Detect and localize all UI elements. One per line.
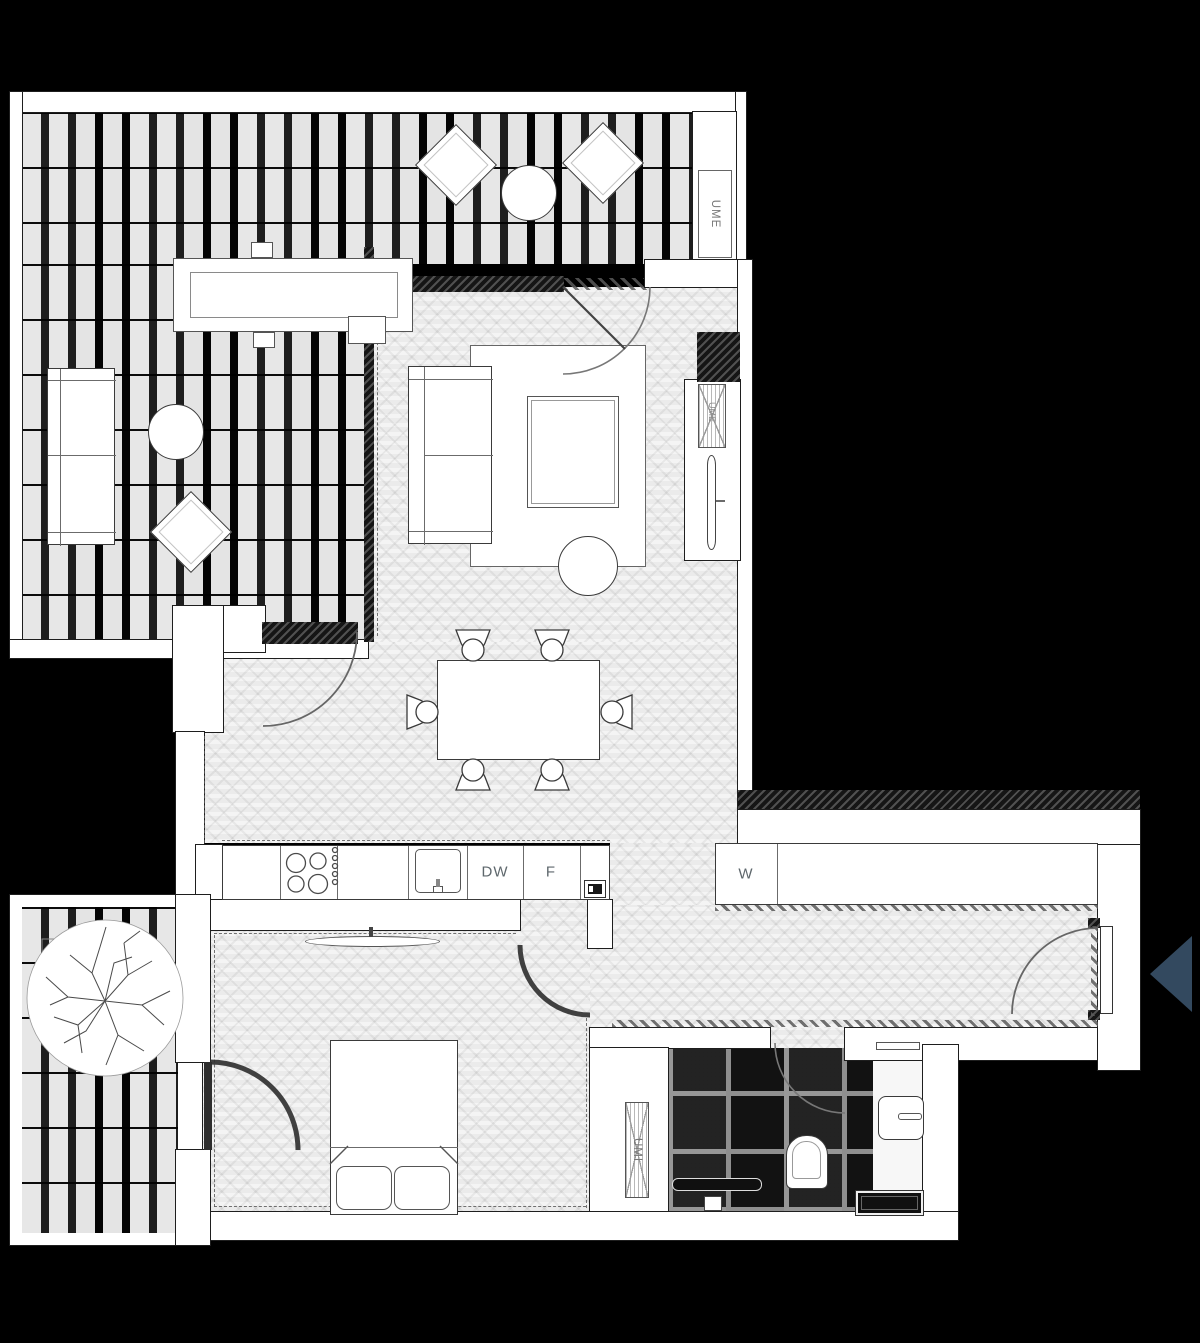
hallway-north-wall	[738, 810, 1140, 845]
bathroom-east-wall	[923, 1045, 958, 1215]
tv-mount	[716, 500, 725, 502]
terrace-dining-door-threshold	[262, 622, 358, 644]
washer-label: W	[738, 866, 753, 883]
bedroom-floor-edge-left	[214, 935, 215, 1207]
counter-divider-6	[580, 846, 581, 899]
bedroom-west-wall-lower	[176, 1150, 210, 1245]
bedroom-west-wall-upper	[176, 895, 210, 1062]
hallway-south-edge-hatch	[612, 1020, 1098, 1027]
terrace-wall-left	[10, 92, 22, 658]
tv	[707, 455, 716, 550]
counter-divider-5	[523, 846, 524, 899]
counter-divider-2	[337, 846, 338, 899]
dining-corner-wall-v	[173, 606, 223, 732]
hallway-north-edge-hatch	[715, 905, 1098, 911]
terrace-wall-right	[736, 92, 746, 264]
tv-niche-top-hatch	[697, 332, 740, 382]
kitchen-faucet-stub	[436, 879, 440, 887]
counter-divider-4	[467, 846, 468, 899]
washer-closet-divider	[777, 844, 778, 904]
floor-plan-canvas: UME UME UMI DW F W	[0, 0, 1200, 1343]
towel-rail	[876, 1042, 920, 1050]
terrace-bench-extension	[348, 316, 386, 344]
bathroom-faucet	[898, 1113, 922, 1120]
kitchen-counter-guide	[222, 840, 610, 841]
hallway-south-wall-west	[590, 1028, 770, 1048]
entry-threshold-hatch	[1091, 926, 1098, 1016]
bathroom-unit-label: UMI	[631, 1138, 643, 1162]
shower-drain-box	[704, 1196, 722, 1211]
dining-table	[437, 660, 600, 760]
shower-mat	[672, 1178, 762, 1191]
side-table-round	[558, 536, 618, 596]
entry-door-leaf	[1100, 926, 1113, 1014]
dishwasher-label: DW	[482, 864, 509, 881]
living-room-east-wall	[738, 260, 752, 810]
bedroom-floor-edge-right	[586, 1018, 587, 1208]
hallway-north-wall-core	[738, 790, 1140, 810]
toilet	[786, 1135, 828, 1189]
counter-end-box	[584, 880, 606, 898]
small-terrace-door-leaf	[204, 1062, 212, 1150]
bathroom-door-threshold	[770, 1028, 845, 1048]
counter-divider-1	[280, 846, 281, 899]
kitchen-faucet	[433, 886, 443, 893]
bedroom-door-threshold	[520, 900, 590, 930]
terrace-unit-label: UME	[709, 200, 721, 229]
bedroom-floor-edge-top	[214, 933, 516, 934]
pillow-left	[336, 1166, 392, 1210]
kitchen-bedroom-wall	[196, 900, 520, 930]
bath-mat	[856, 1191, 923, 1215]
south-exterior-wall	[176, 1212, 958, 1240]
bed-sheet-line	[330, 1147, 458, 1148]
terrace-bench-foot-bottom	[253, 332, 275, 348]
living-room-north-wall	[645, 260, 746, 287]
entry-arrow	[1150, 936, 1192, 1012]
pillow-right	[394, 1166, 450, 1210]
outdoor-table-round-1	[501, 165, 557, 221]
counter-divider-3	[408, 846, 409, 899]
kitchen-passage-floor	[610, 843, 715, 905]
terrace-bench-foot-top	[251, 242, 273, 258]
washer-closet	[715, 843, 1098, 905]
terrace-wall-top	[10, 92, 746, 112]
outdoor-sofa	[47, 368, 115, 545]
small-terrace-deck-inner	[22, 907, 178, 1233]
coffee-table	[527, 396, 619, 508]
sofa	[408, 366, 492, 544]
living-room-unit-label: UME	[707, 402, 717, 422]
outdoor-table-round-2	[148, 404, 204, 460]
bedroom-ceiling-lamp	[305, 936, 440, 947]
fridge-label: F	[546, 864, 556, 881]
hallway-floor	[590, 905, 1098, 1028]
bedroom-lamp-pin	[369, 927, 373, 937]
dining-floor-edge-left	[204, 736, 205, 843]
bedroom-door-jamb	[588, 900, 612, 948]
terrace-door-threshold-hatch	[564, 278, 650, 290]
